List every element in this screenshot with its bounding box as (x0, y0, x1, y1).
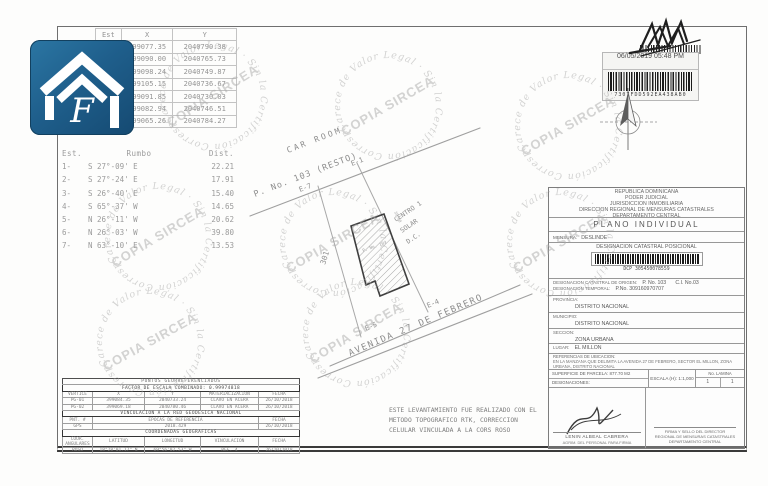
pg-col: FECHA (259, 436, 300, 447)
cell-y: 2040790.38 (173, 41, 237, 53)
mensura-label: MENSURA: (553, 235, 577, 240)
lamina-value: 1 (721, 378, 745, 387)
logo-letter: F (69, 91, 95, 131)
escala-cell: ESCALA (H): 1:1,000 (649, 370, 696, 387)
provincia-row: PROVINCIA: DISTRITO NACIONAL (549, 296, 744, 313)
pg-cell: REF. 4 (201, 447, 259, 453)
app-house-logo: F (30, 40, 134, 135)
bearing-rumbo: S 27°-24' E (88, 173, 190, 186)
dcp-section: DESIGNACION CATASTRAL POSICIONAL DCP 305… (549, 243, 744, 279)
bearing-dist: 20.62 (190, 213, 234, 226)
bearing-row: 3-S 26°-40' E15.40 (62, 187, 238, 200)
pg-col: LONGITUD (145, 436, 201, 447)
seccion-row: SECCION: ZONA URBANA (549, 329, 744, 344)
bearing-dist: 14.65 (190, 200, 234, 213)
field-value: ZONA URBANA (575, 337, 744, 343)
field-value: EL MILLON (575, 345, 602, 351)
surveyor-signature-box: EL PRESENTE PLANO CORRESPONDE AL ACTO DE… (549, 388, 646, 448)
house-icon: F (30, 40, 134, 135)
bearing-dist: 13.53 (190, 239, 234, 252)
bearing-row: 6-N 26°-03' W39.80 (62, 226, 238, 239)
dcp-barcode (591, 252, 703, 266)
pg-cell: 69°56'02.53" W (145, 447, 201, 453)
escala-label: ESCALA (H): (650, 376, 677, 381)
pg-cell: ROSO (63, 447, 93, 453)
table-row: ROSO 18°28'01.17" N 69°56'02.53" W REF. … (63, 447, 300, 453)
superficie-value: 877.70 M2 (610, 371, 631, 376)
barcode-code: 7307FDD592EA438AB0 (603, 92, 698, 98)
col-header-y: Y (173, 29, 237, 41)
pg-cell: 26/10/2018 (259, 447, 300, 453)
survey-method-note: ESTE LEVANTAMIENTO FUE REALIZADO CON EL … (389, 406, 541, 435)
bearing-est: 1- (62, 160, 88, 173)
bearing-est: 7- (62, 239, 88, 252)
barcode-sticker: 06/05/2019 05:48 PM 7307FDD592EA438AB0 (602, 52, 699, 101)
referencias-text: EN LA MANZANA QUE DELIMITA LA AVENIDA 27… (553, 359, 732, 369)
municipio-row: MUNICIPIO: DISTRITO NACIONAL (549, 313, 744, 329)
bearing-est: 4- (62, 200, 88, 213)
escala-value: 1:1,000 (678, 376, 693, 381)
field-value: DISTRITO NACIONAL (575, 321, 744, 327)
bearing-est: 2- (62, 173, 88, 186)
bearing-col-est: Est. (62, 147, 88, 160)
sticker-datetime: 06/05/2019 05:48 PM (603, 53, 698, 70)
mensura-row: MENSURA:DESLINDE (549, 232, 744, 243)
dcp-title: DESIGNACION CATASTRAL POSICIONAL (596, 244, 697, 250)
surveyor-role: AGRIM. DEL PERSONAL PARA FIRMA (551, 440, 643, 445)
referencias-row: REFERENCIAS DE UBICACION: EN LA MANZANA … (549, 354, 744, 370)
bearing-rumbo: N 63°-10' E (88, 239, 190, 252)
pg-cell: 18°28'01.17" N (93, 447, 145, 453)
field-label: MUNICIPIO: (553, 314, 577, 319)
bearing-rumbo: N 26°-03' W (88, 226, 190, 239)
superficie-cell: SUPERFICIE DE PARCELA: 877.70 M2 DESIGNA… (549, 370, 649, 387)
cell-y: 2040784.27 (173, 115, 237, 127)
field-label: DESIGNACION CATASTRAL DE ORIGEN: (553, 280, 637, 285)
bearing-dist: 39.80 (190, 226, 234, 239)
lamina-cell: No. LAMINA 1 1 (696, 370, 744, 387)
field-label: LUGAR: (553, 345, 569, 350)
title-block-header: REPUBLICA DOMINICANA PODER JUDICIAL JURI… (549, 188, 744, 218)
lugar-row: LUGAR: EL MILLON (549, 344, 744, 354)
bearing-row: 1-S 27°-09' E22.21 (62, 160, 238, 173)
bearing-est: 5- (62, 213, 88, 226)
cell-y: 2040736.67 (173, 78, 237, 90)
cell-y: 2040730.03 (173, 90, 237, 102)
pg-geo-header: COOR. ANGULARES LATITUD LONGITUD VINCULA… (63, 436, 300, 447)
designaciones-label: DESIGNACIONES: (549, 379, 648, 387)
bearing-est: 3- (62, 187, 88, 200)
director-signature-box: DE CONFORMIDAD CON LO DISPUESTO EN EL RE… (646, 388, 744, 448)
field-value: DISTRITO NACIONAL (575, 304, 744, 310)
bearing-rumbo: S 65°-37' W (88, 200, 190, 213)
lamina-value: 1 (696, 378, 721, 387)
bearing-row: 5-N 26°-11' W20.62 (62, 213, 238, 226)
field-label: PROVINCIA: (553, 297, 578, 302)
field-label: SECCION: (553, 330, 574, 335)
dcp-code: DCP 305450078559 (549, 267, 744, 272)
bearing-col-rumbo: Rumbo (88, 147, 190, 160)
barcode (608, 72, 693, 91)
bearing-distance-table: Est. Rumbo Dist. 1-S 27°-09' E22.21 2-S … (62, 147, 238, 253)
bearing-rumbo: S 26°-40' E (88, 187, 190, 200)
bearing-rumbo: N 26°-11' W (88, 213, 190, 226)
plano-individual-title: PLANO INDIVIDUAL (549, 218, 744, 232)
field-value: C.I. No.03 (675, 280, 698, 286)
bearing-dist: 22.21 (190, 160, 234, 173)
pg-col: LATITUD (93, 436, 145, 447)
superficie-row: SUPERFICIE DE PARCELA: 877.70 M2 DESIGNA… (549, 370, 744, 388)
lamina-label: No. LAMINA (696, 370, 744, 378)
bearing-header-row: Est. Rumbo Dist. (62, 147, 238, 160)
pg-col: MATERIALIZACION (201, 391, 259, 397)
field-label: DESIGNACION TEMPORAL: (553, 286, 610, 291)
pg-col: VINCULACION (201, 436, 259, 447)
bearing-rumbo: S 27°-09' E (88, 160, 190, 173)
signature-section: EL PRESENTE PLANO CORRESPONDE AL ACTO DE… (549, 388, 744, 448)
title-block: REPUBLICA DOMINICANA PODER JUDICIAL JURI… (548, 187, 745, 449)
pg-col: COOR. ANGULARES (63, 436, 93, 447)
cell-y: 2040746.51 (173, 103, 237, 115)
designacion-origen-row: DESIGNACION CATASTRAL DE ORIGEN: P. No. … (549, 279, 744, 296)
bearing-dist: 17.91 (190, 173, 234, 186)
director-caption: FIRMA Y SELLO DEL DIRECTOR REGIONAL DE M… (654, 427, 736, 445)
cell-y: 2040765.73 (173, 53, 237, 65)
cell-y: 2040749.87 (173, 66, 237, 78)
field-value: P.No. 309160970707 (616, 286, 664, 292)
bearing-row: 4-S 65°-37' W14.65 (62, 200, 238, 213)
mensura-value: DESLINDE (581, 235, 607, 241)
bearing-est: 6- (62, 226, 88, 239)
bearing-row: 2-S 27°-24' E17.91 (62, 173, 238, 186)
superficie-label: SUPERFICIE DE PARCELA: (552, 371, 608, 376)
bearing-dist: 15.40 (190, 187, 234, 200)
surveyor-name: LENIN ALBEAL CABRERA (553, 432, 641, 439)
georeferenced-points-table: PUNTOS GEORREFERENCIADOS FACTOR DE ESCAL… (62, 378, 300, 454)
bearing-col-dist: Dist. (190, 147, 234, 160)
scanned-cadastral-plan: Est X Y 1399077.352040790.38 2399090.002… (0, 0, 768, 486)
bearing-row: 7-N 63°-10' E13.53 (62, 239, 238, 252)
